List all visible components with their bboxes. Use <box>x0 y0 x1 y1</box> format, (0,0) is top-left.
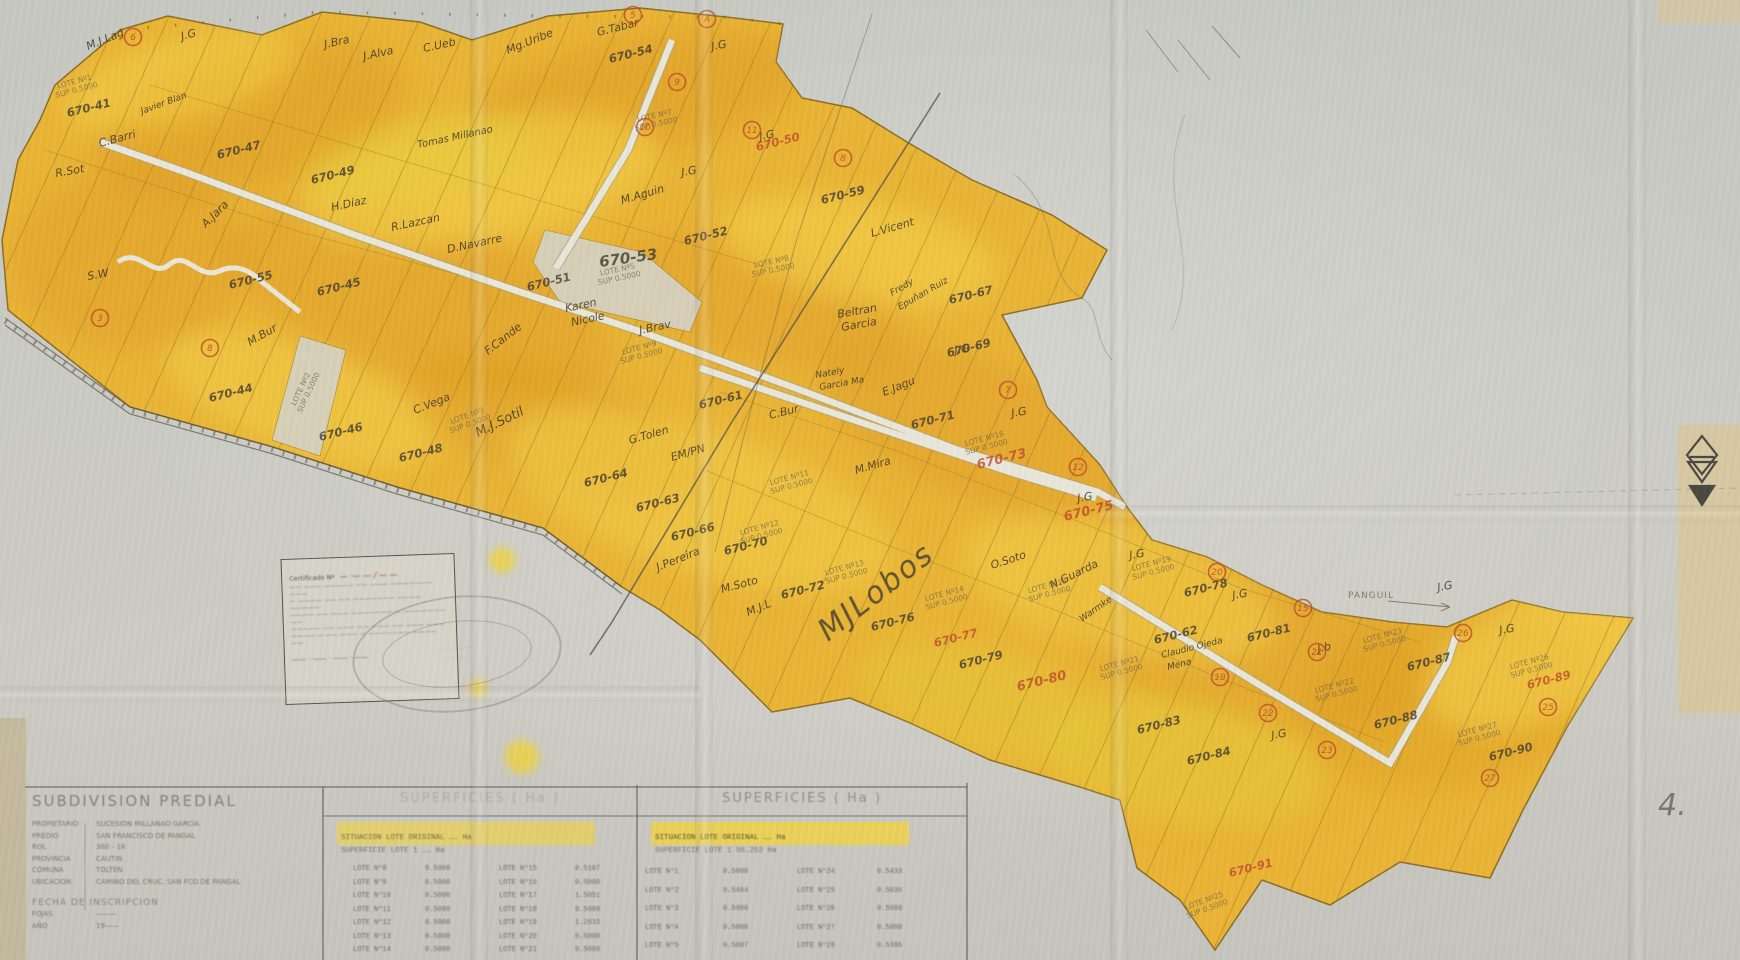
owner-label: M.Mira <box>853 454 892 477</box>
owner-label: J.b <box>1314 640 1332 656</box>
parcel-shading <box>10 6 1673 843</box>
lot-label: LOTE Nº9SUP 0.5000 <box>617 338 664 366</box>
owner-label: G.Tolen <box>627 423 670 447</box>
survey-marker: 8 <box>835 150 852 167</box>
table-row: LOTE Nº130.5000LOTE Nº200.5000 <box>323 931 637 945</box>
titleblock-field: PROVINCIACAUTIN <box>32 854 320 866</box>
svg-text:22: 22 <box>1262 709 1274 719</box>
owner-label: Warmke <box>1078 595 1115 625</box>
parcel-number-label: 670-54 <box>607 41 654 65</box>
svg-text:8: 8 <box>207 344 213 354</box>
table-title: SUPERFICIES ( Ha ) <box>323 791 637 806</box>
owner-label: J.Brav <box>636 317 672 337</box>
owner-label: C.Barri <box>97 128 137 150</box>
parcel-long-lines <box>45 85 1420 742</box>
survey-marker: 20 <box>1209 564 1226 581</box>
plan-title: SUBDIVISION PREDIAL <box>32 792 320 810</box>
table-row: LOTE Nº40.5000LOTE Nº270.5000 <box>637 919 967 938</box>
parcel-number-label: 670-50 <box>754 129 801 153</box>
svg-text:26: 26 <box>1457 629 1469 639</box>
owner-label: J.G <box>1229 587 1248 603</box>
survey-marker: 6 <box>125 29 142 46</box>
owner-label: A.Jara <box>198 198 231 231</box>
paper-edge-left <box>0 718 26 960</box>
owner-label: M.J.Sotil <box>473 404 527 440</box>
owner-label: EM/PN <box>669 442 706 464</box>
owner-label: M.J.Lag <box>84 26 126 53</box>
lot-label: LOTE Nº21SUP 0.5000 <box>1097 654 1144 682</box>
parcel-number-label: 670-48 <box>397 440 444 464</box>
owner-label: Epuñan Ruiz <box>897 276 951 313</box>
table-title: SUPERFICIES ( Ha ) <box>637 791 967 806</box>
lot-label: LOTE Nº18SUP 0.5000 <box>1025 576 1072 604</box>
parcel-number-label: 670-87 <box>1405 649 1452 673</box>
lot-label: LOTE Nº27SUP 0.5000 <box>1455 720 1502 748</box>
owner-label: E.Jagu <box>880 374 917 399</box>
paper-fold <box>1100 505 1740 521</box>
highlighted-row: SITUACION LOTE ORIGINAL …… Ha <box>341 834 472 842</box>
parcel-number-label: 670-75 <box>1062 498 1115 525</box>
tape-strip-right <box>1678 425 1740 713</box>
titleblock-field: COMUNATOLTEN <box>32 865 320 877</box>
lot-label: LOTE Nº22SUP 0.5000 <box>1312 676 1359 704</box>
table-row: LOTE Nº120.5000LOTE Nº191.2633 <box>323 917 637 931</box>
subline: SUPERFICIE LOTE 1 56.252 Ha <box>655 847 967 855</box>
owner-label: J.G <box>1268 727 1287 743</box>
inscription-heading: FECHA DE INSCRIPCION <box>32 898 320 908</box>
white-lots <box>272 230 702 456</box>
svg-text:3: 3 <box>97 314 103 324</box>
big-signature: MJLobos <box>811 536 940 648</box>
svg-text:6: 6 <box>130 33 136 43</box>
table-row: LOTE Nº60.5000LOTE Nº290.5036 <box>637 956 967 960</box>
survey-marker: 25 <box>1540 699 1557 716</box>
lot-label: LOTE Nº25SUP 0.5000 <box>1182 889 1229 920</box>
highlighted-row: SITUACION LOTE ORIGINAL …… Ha <box>655 834 786 842</box>
owner-label: R.Sot <box>54 162 86 180</box>
lot-label: LOTE Nº8SUP 0.5000 <box>749 253 795 279</box>
lot-label: LOTE Nº1SUP 0.5000 <box>52 72 99 100</box>
owner-label: D.Navarre <box>446 232 504 256</box>
parcel-number-label: 670-63 <box>634 490 681 514</box>
parcel-number-label: 670-77 <box>932 625 979 649</box>
owner-label: J.G <box>756 128 775 144</box>
owner-label: J.G <box>1434 579 1453 595</box>
parcel-numbers-group: 670-41670-47670-49670-54670-50670-59670-… <box>65 41 1572 879</box>
svg-text:23: 23 <box>1321 746 1333 756</box>
parcel-number-label: 670-52 <box>682 223 729 247</box>
lot-label: LOTE Nº13SUP 0.5000 <box>822 558 869 586</box>
parcel-number-label: 670-59 <box>819 182 866 206</box>
titleblock-field: PREDIOSAN FRANCISCO DE PANGAL <box>32 831 320 843</box>
parcel-number-label: 670-73 <box>975 446 1028 473</box>
titleblock-field: FOJAS——— <box>32 908 320 920</box>
svg-text:7: 7 <box>1005 386 1011 396</box>
owner-label: M.J.L <box>744 597 773 619</box>
superficies-table-right: SUPERFICIES ( Ha ) SITUACION LOTE ORIGIN… <box>637 783 967 960</box>
table-row: LOTE Nº20.5464LOTE Nº250.5036 <box>637 882 967 901</box>
parcel-number-label: 670-84 <box>1185 743 1232 767</box>
titleblock-field: UBICACIONCAMINO DEL CRUC. SAN FCO DE PAN… <box>32 877 320 889</box>
superficies-table-left: SUPERFICIES ( Ha ) SITUACION LOTE ORIGIN… <box>323 783 637 960</box>
survey-marker: 26 <box>1455 625 1472 642</box>
owner-label: J.G <box>1008 405 1027 421</box>
owner-label: Mg.Uribe <box>504 26 555 57</box>
owner-label: Nately <box>815 366 846 381</box>
table-row: LOTE Nº140.5000LOTE Nº210.5000 <box>323 944 637 958</box>
parcel-number-label: 670-45 <box>315 274 362 298</box>
table-row: LOTE Nº50.5007LOTE Nº280.5386 <box>637 937 967 956</box>
parcel-number-label: 670-76 <box>869 609 916 633</box>
owner-label: F.Cande <box>482 320 525 357</box>
owner-label: Nicole <box>570 309 606 329</box>
parcel-number-label: 670-62 <box>1152 622 1199 646</box>
svg-text:20: 20 <box>1211 568 1223 578</box>
parcel-number-label: 670-72 <box>779 577 826 601</box>
svg-text:8: 8 <box>840 154 846 164</box>
owner-label: M.Soto <box>719 574 759 596</box>
road-name-label: PANGUIL <box>1348 591 1394 601</box>
owner-label: J.Bra <box>321 33 351 51</box>
parcel-number-label: 670-88 <box>1372 707 1419 731</box>
lot-label: LOTE Nº26SUP 0.5000 <box>1507 652 1554 680</box>
boundary-track <box>5 318 622 594</box>
owner-label: L.Vicent <box>869 215 916 240</box>
tape-strip-top-right <box>1658 0 1740 24</box>
owner-label: J.Pereira <box>652 544 701 574</box>
titleblock-field: PROPIETARIOSUCESION MILLANAO GARCIA <box>32 819 320 831</box>
survey-marker: 23 <box>1319 742 1336 759</box>
survey-marker: 12 <box>1070 459 1087 476</box>
survey-marker: 3 <box>92 310 109 327</box>
table-row: LOTE Nº10.5000LOTE Nº240.5433 <box>637 863 967 882</box>
svg-text:15: 15 <box>1297 604 1309 614</box>
owner-label: Garcia Ma <box>819 375 865 393</box>
survey-marker: 15 <box>1295 600 1312 617</box>
parcel-number-label: 670-46 <box>317 419 364 443</box>
parcel-number-label: 670-41 <box>65 95 112 119</box>
parcel-number-label: 670-47 <box>215 137 262 161</box>
table-row: LOTE Nº100.5000LOTE Nº171.5051 <box>323 890 637 904</box>
owner-label: Claudio Ojeda <box>1160 636 1223 661</box>
survey-marker: 7 <box>1000 382 1017 399</box>
parcel-number-label: 670-83 <box>1135 712 1182 736</box>
parcel-number-label: 670-70 <box>722 533 769 557</box>
subline: SUPERFICIE LOTE 1 …… Ha <box>341 847 637 855</box>
owner-labels-group: M.J.LagJ.GJ.BraJ.AlvaC.UebMg.UribeG.Taba… <box>54 16 1515 743</box>
survey-marker: 10 <box>637 119 654 136</box>
svg-text:11: 11 <box>746 126 757 136</box>
parcel-number-label: 670-91 <box>1227 855 1274 879</box>
owner-label: C.Vega <box>411 390 452 417</box>
lot-label: LOTE Nº11SUP 0.5000 <box>767 468 814 496</box>
owner-label: R.Lazcan <box>390 211 441 234</box>
paper-fold <box>1628 0 1646 960</box>
owner-label: C.Ueb <box>422 35 457 55</box>
survey-marker: 19 <box>1212 669 1229 686</box>
parcel-number-label: 670-71 <box>909 407 956 431</box>
owner-label: Garcia <box>840 315 878 334</box>
owner-label: N.Guarda <box>1048 557 1101 592</box>
certificate-number: — ·— — / — — <box>339 570 397 581</box>
owner-label: J.G <box>678 164 697 180</box>
svg-text:21: 21 <box>1311 648 1322 658</box>
owner-label: J.Alva <box>360 44 395 64</box>
boundary-ticks <box>120 12 783 30</box>
parcel-number-label: 670-61 <box>697 387 744 411</box>
lot-label: LOTE Nº3SUP 0.5000 <box>445 404 492 435</box>
survey-marker: 27 <box>1482 770 1499 787</box>
survey-marker: 22 <box>1260 705 1277 722</box>
table-row: LOTE Nº80.5000LOTE Nº150.5187 <box>323 863 637 877</box>
owner-label: J.G <box>177 26 197 43</box>
lot-label: LOTE Nº12SUP 0.5000 <box>737 518 784 546</box>
lot-label: LOTE Nº16SUP 0.5000 <box>962 429 1009 457</box>
owner-label: S.W <box>86 266 110 283</box>
parcel-number-label: 670-90 <box>1487 739 1534 763</box>
owner-label: J.G <box>708 38 727 54</box>
owner-label: Fredy <box>889 277 917 299</box>
survey-marker: 11 <box>744 122 761 139</box>
owner-label: M.Bur <box>245 321 281 349</box>
svg-text:27: 27 <box>1484 774 1496 784</box>
stamp-text-2: · · · · · <box>443 652 473 664</box>
parcel-number-label: 670-55 <box>227 267 274 291</box>
owner-label: Mena <box>1166 657 1192 673</box>
parcel-number-label: 670-64 <box>582 465 629 489</box>
owner-label: G.Tabar <box>596 16 642 39</box>
lot-label: LOTE Nº19SUP 0.5000 <box>1129 554 1176 582</box>
titleblock-field: AÑO19—— <box>32 920 320 932</box>
certificate-header: Certificado Nº <box>289 573 335 583</box>
cadastral-map-photo: LOTE Nº1SUP 0.5000LOTE Nº2SUP 0.5000LOTE… <box>0 0 1740 960</box>
owner-label: J.G <box>1074 490 1093 506</box>
owner-label: M.Aguin <box>619 182 665 207</box>
road-arrow <box>1388 601 1450 611</box>
owner-label: Beltran <box>836 301 878 321</box>
owner-label: C.Bur <box>768 402 802 422</box>
lot-label: LOTE Nº14SUP 0.5000 <box>922 584 969 612</box>
lot-label: LOTE Nº2SUP 0.5000 <box>287 367 321 414</box>
svg-text:25: 25 <box>1542 703 1554 713</box>
owner-label: Javier Blan <box>138 91 189 118</box>
parcel-number-label: 670-69 <box>945 335 992 359</box>
lot-label: LOTE Nº5SUP 0.5000 <box>595 261 641 287</box>
owner-label: J.G <box>951 342 970 358</box>
parcel-number-label: 670-44 <box>207 380 254 404</box>
parcel-number-label: 670-80 <box>1015 668 1068 695</box>
survey-marker: 8 <box>202 340 219 357</box>
svg-text:12: 12 <box>1072 463 1084 473</box>
svg-text:9: 9 <box>674 78 680 88</box>
table-row: LOTE Nº110.5000LOTE Nº180.5000 <box>323 904 637 918</box>
owner-label: Karen <box>564 296 598 315</box>
survey-marker: 9 <box>669 74 686 91</box>
svg-text:A: A <box>703 15 710 25</box>
parcel-number-label: 670-66 <box>669 519 716 543</box>
table-row: LOTE Nº90.5000LOTE Nº160.5000 <box>323 877 637 891</box>
parcel-number-label: 670-51 <box>525 269 572 293</box>
owner-label: J.G <box>1496 622 1515 638</box>
parcel-number-label: 670-81 <box>1245 620 1292 644</box>
owner-label: H.Diaz <box>330 194 368 214</box>
parcel-number-label: 670-89 <box>1525 667 1572 691</box>
lot-label: LOTE Nº7SUP 0.5000 <box>632 107 678 133</box>
pencil-lines <box>590 14 1740 655</box>
paper-fold <box>1110 0 1128 960</box>
svg-text:5: 5 <box>630 11 636 21</box>
survey-marker: A <box>699 11 716 28</box>
parcel-number-label: 670-49 <box>309 162 356 186</box>
pencil-page-number: 4. <box>1658 788 1687 823</box>
titleblock-field: ROL360 - 18 <box>32 842 320 854</box>
parcel-number-label: 670-78 <box>1182 575 1229 599</box>
owner-label: J.G <box>1126 547 1145 563</box>
lot-label: LOTE Nº23SUP 0.5000 <box>1360 626 1407 654</box>
svg-text:10: 10 <box>639 123 651 133</box>
table-row: LOTE Nº30.5000LOTE Nº260.5000 <box>637 900 967 919</box>
title-block: SUBDIVISION PREDIAL PROPIETARIOSUCESION … <box>32 792 320 960</box>
owner-label: Tomas Millanao <box>416 124 494 151</box>
survey-marker: 21 <box>1309 644 1326 661</box>
parcel-number-label: 670-67 <box>947 282 994 306</box>
parcel-number-label: 670-53 <box>598 245 658 271</box>
stream <box>118 258 300 312</box>
parcel-number-label: 670-79 <box>957 647 1004 671</box>
survey-marker: 5 <box>625 7 642 24</box>
owner-label: O.Soto <box>989 548 1028 572</box>
svg-text:19: 19 <box>1214 673 1226 683</box>
